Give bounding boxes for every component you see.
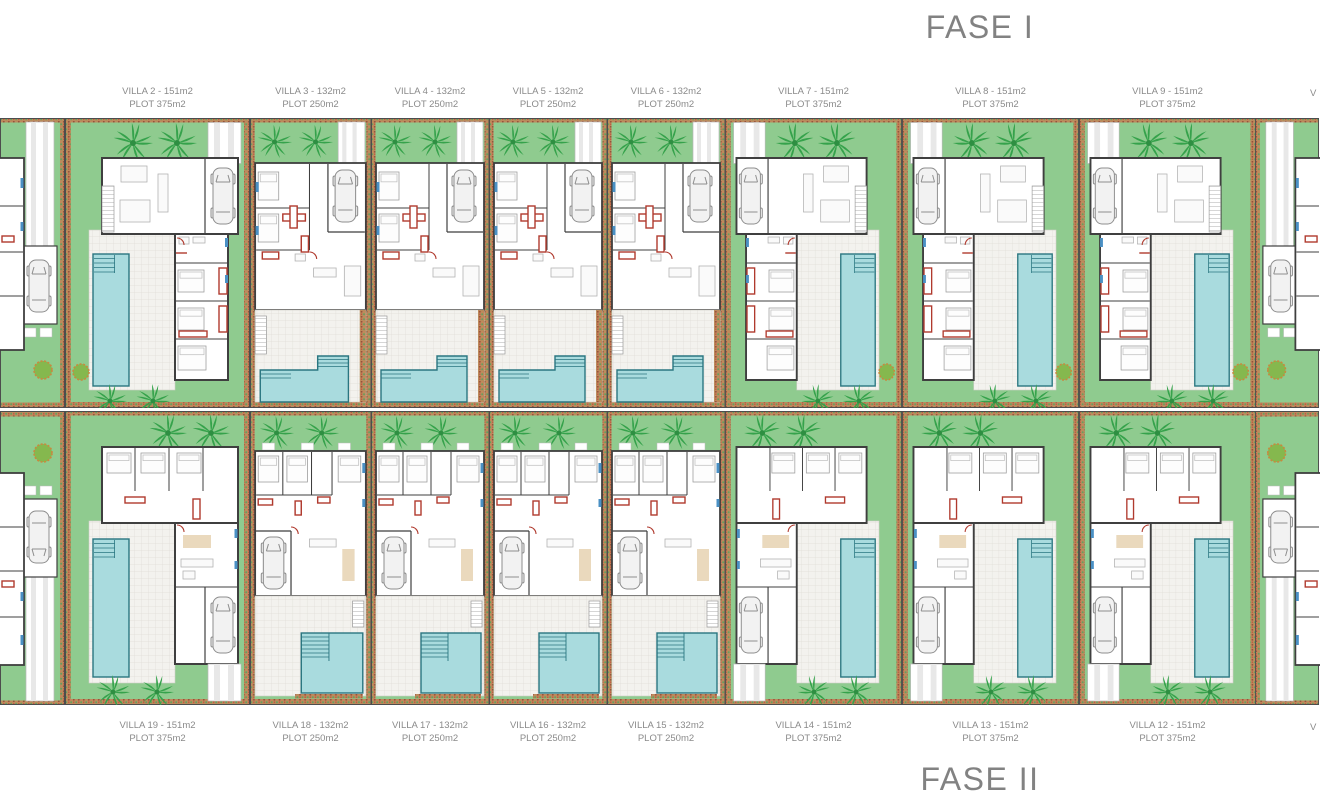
plot-villa-5 — [489, 118, 607, 408]
plot-villa-16 — [489, 411, 607, 705]
stairs — [707, 601, 718, 627]
plot-villa-5-drawing — [489, 118, 607, 408]
stairs — [471, 601, 482, 627]
swimming-pool — [1018, 539, 1052, 677]
villa-label: VILLA 8 - 151m2PLOT 375m2 — [916, 85, 1066, 111]
driveway — [1266, 122, 1294, 246]
swimming-pool — [421, 633, 481, 693]
plot-villa-edge-right — [1256, 411, 1320, 705]
plot-villa-edge-right — [1256, 118, 1320, 408]
stairs — [612, 316, 623, 354]
villa-plot-size: PLOT 375m2 — [916, 98, 1066, 111]
car-icon — [333, 170, 358, 222]
plot-villa-3-drawing — [250, 118, 371, 408]
driveway — [26, 577, 54, 701]
swimming-pool — [539, 633, 599, 693]
villa-plot-size: PLOT 250m2 — [591, 732, 741, 745]
plot-villa-17 — [371, 411, 489, 705]
plant-strip — [533, 694, 599, 699]
fase1-plot-row — [0, 118, 1320, 408]
plot-villa-edge-left-drawing — [0, 118, 65, 408]
swimming-pool — [841, 254, 875, 386]
driveway — [1088, 664, 1120, 701]
bush-icon — [34, 444, 52, 462]
villa-name: VILLA 8 - 151m2 — [916, 85, 1066, 98]
plant-strip — [651, 694, 717, 699]
plot-villa-6 — [607, 118, 725, 408]
car-icon — [27, 511, 51, 563]
plot-villa-7 — [725, 118, 902, 408]
villa-plot-size: PLOT 250m2 — [591, 98, 741, 111]
villa-plot-size: PLOT 375m2 — [1093, 732, 1243, 745]
building — [0, 473, 24, 665]
plot-villa-16-drawing — [489, 411, 607, 705]
plot-villa-3 — [250, 118, 371, 408]
plot-villa-8 — [902, 118, 1079, 408]
car-icon — [916, 597, 939, 653]
bush-icon — [34, 361, 52, 379]
villa-plot-size: PLOT 375m2 — [1093, 98, 1243, 111]
villa-label: VILLA 14 - 151m2PLOT 375m2 — [739, 719, 889, 745]
car-icon — [916, 168, 939, 224]
plot-villa-14 — [725, 411, 902, 705]
villa-label: VILLA 12 - 151m2PLOT 375m2 — [1093, 719, 1243, 745]
swimming-pool — [301, 633, 363, 693]
bush-icon — [879, 364, 894, 380]
car-icon — [739, 597, 762, 653]
car-icon — [261, 537, 286, 589]
car-icon — [211, 168, 235, 224]
villa-plot-size: PLOT 375m2 — [83, 732, 233, 745]
car-icon — [27, 260, 51, 312]
driveway — [911, 664, 943, 701]
plot-villa-2 — [65, 118, 250, 408]
villa-name: VILLA 2 - 151m2 — [83, 85, 233, 98]
villa-label: VILLA 19 - 151m2PLOT 375m2 — [83, 719, 233, 745]
plot-villa-edge-right-drawing — [1256, 411, 1320, 705]
car-icon — [500, 537, 524, 589]
bush-icon — [1268, 361, 1286, 379]
plot-villa-9-drawing — [1079, 118, 1256, 408]
plot-villa-edge-left-drawing — [0, 411, 65, 705]
plot-villa-12 — [1079, 411, 1256, 705]
car-icon — [1093, 597, 1116, 653]
driveway — [1266, 577, 1294, 701]
swimming-pool — [1195, 539, 1229, 677]
plot-villa-4-drawing — [371, 118, 489, 408]
villa-name: VILLA 13 - 151m2 — [916, 719, 1066, 732]
villa-label: VILLA 6 - 132m2PLOT 250m2 — [591, 85, 741, 111]
building — [1295, 473, 1320, 665]
swimming-pool — [93, 254, 129, 386]
plot-villa-edge-left — [0, 411, 65, 705]
stairs — [255, 316, 266, 354]
bush-icon — [73, 364, 89, 380]
plot-villa-19-drawing — [65, 411, 250, 705]
villa-name: VILLA 12 - 151m2 — [1093, 719, 1243, 732]
building — [0, 158, 24, 350]
plot-villa-17-drawing — [371, 411, 489, 705]
driveway — [693, 122, 719, 163]
stairs — [353, 601, 364, 627]
plot-villa-4 — [371, 118, 489, 408]
plant-strip — [596, 310, 602, 402]
villa-label: VILLA 15 - 132m2PLOT 250m2 — [591, 719, 741, 745]
swimming-pool — [93, 539, 129, 677]
car-icon — [1093, 168, 1116, 224]
swimming-pool — [841, 539, 875, 677]
bush-icon — [1233, 364, 1248, 380]
plot-villa-7-drawing — [725, 118, 902, 408]
car-icon — [452, 170, 476, 222]
swimming-pool — [657, 633, 717, 693]
car-icon — [211, 597, 235, 653]
villa-plot-size: PLOT 375m2 — [739, 732, 889, 745]
plot-villa-14-drawing — [725, 411, 902, 705]
edge-villa-label-bottom: V — [1310, 721, 1320, 734]
stairs — [494, 316, 505, 354]
fase1-title: FASE I — [870, 9, 1090, 46]
villa-name: VILLA 9 - 151m2 — [1093, 85, 1243, 98]
plot-villa-edge-left — [0, 118, 65, 408]
car-icon — [618, 537, 642, 589]
plot-villa-15 — [607, 411, 725, 705]
plant-strip — [478, 310, 484, 402]
swimming-pool — [1018, 254, 1052, 386]
plot-villa-6-drawing — [607, 118, 725, 408]
car-icon — [382, 537, 406, 589]
car-icon — [688, 170, 712, 222]
plot-villa-18 — [250, 411, 371, 705]
building — [1295, 158, 1320, 350]
car-icon — [1269, 260, 1293, 312]
driveway — [338, 122, 365, 163]
car-icon — [739, 168, 762, 224]
villa-name: VILLA 14 - 151m2 — [739, 719, 889, 732]
villa-plot-size: PLOT 375m2 — [83, 98, 233, 111]
villa-label: VILLA 9 - 151m2PLOT 375m2 — [1093, 85, 1243, 111]
swimming-pool — [1195, 254, 1229, 386]
plot-villa-12-drawing — [1079, 411, 1256, 705]
driveway — [734, 664, 766, 701]
villa-plot-size: PLOT 375m2 — [916, 732, 1066, 745]
plot-villa-18-drawing — [250, 411, 371, 705]
plot-villa-2-drawing — [65, 118, 250, 408]
plot-villa-13-drawing — [902, 411, 1079, 705]
plot-villa-8-drawing — [902, 118, 1079, 408]
villa-name: VILLA 15 - 132m2 — [591, 719, 741, 732]
driveway — [457, 122, 483, 163]
fase2-plot-row — [0, 411, 1320, 705]
plot-villa-13 — [902, 411, 1079, 705]
plant-strip — [295, 694, 363, 699]
plant-strip — [415, 694, 481, 699]
villa-label: VILLA 7 - 151m2PLOT 375m2 — [739, 85, 889, 111]
villa-name: VILLA 19 - 151m2 — [83, 719, 233, 732]
bush-icon — [1056, 364, 1071, 380]
car-icon — [570, 170, 594, 222]
plot-villa-19 — [65, 411, 250, 705]
bush-icon — [1268, 444, 1286, 462]
stairs — [376, 316, 387, 354]
villa-plot-size: PLOT 375m2 — [739, 98, 889, 111]
villa-name: VILLA 7 - 151m2 — [739, 85, 889, 98]
car-icon — [1269, 511, 1293, 563]
edge-villa-label-top: V — [1310, 87, 1320, 100]
plot-villa-edge-right-drawing — [1256, 118, 1320, 408]
site-plan-canvas: FASE I FASE II V V — [0, 0, 1320, 800]
villa-name: VILLA 6 - 132m2 — [591, 85, 741, 98]
fase2-title: FASE II — [870, 761, 1090, 798]
plot-villa-9 — [1079, 118, 1256, 408]
stairs — [589, 601, 600, 627]
driveway — [575, 122, 601, 163]
driveway — [208, 664, 241, 701]
villa-label: VILLA 2 - 151m2PLOT 375m2 — [83, 85, 233, 111]
plant-strip — [714, 310, 720, 402]
driveway — [26, 122, 54, 246]
plot-villa-15-drawing — [607, 411, 725, 705]
plant-strip — [360, 310, 366, 402]
villa-label: VILLA 13 - 151m2PLOT 375m2 — [916, 719, 1066, 745]
